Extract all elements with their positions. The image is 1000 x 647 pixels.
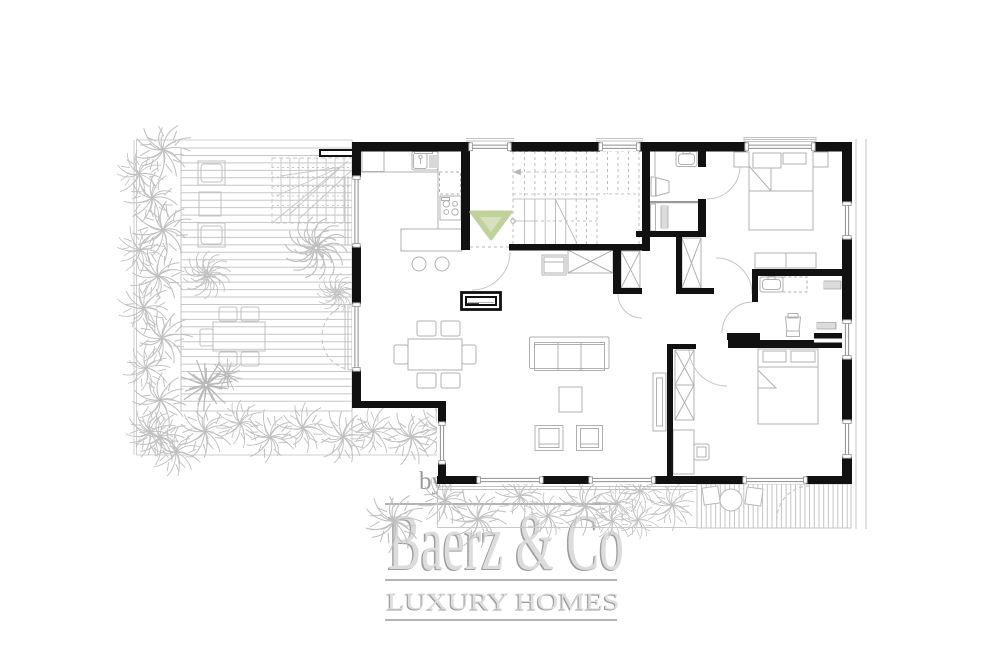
svg-text:Baerz & Co: Baerz & Co [388,497,624,587]
svg-text:LUXURY HOMES: LUXURY HOMES [387,589,620,616]
